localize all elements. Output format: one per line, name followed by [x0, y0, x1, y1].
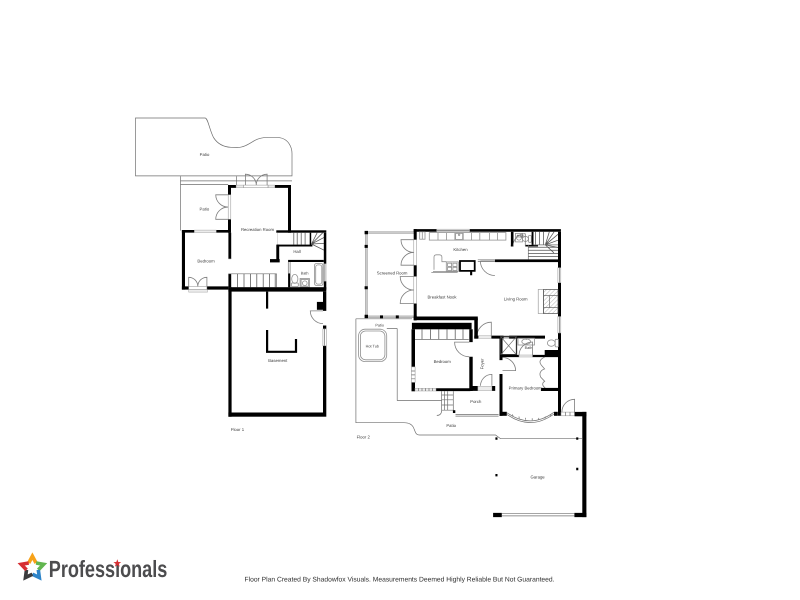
svg-text:Screened Room: Screened Room: [377, 271, 408, 276]
svg-text:Patio: Patio: [200, 152, 210, 157]
svg-text:Bedroom: Bedroom: [434, 359, 452, 364]
svg-text:Patio: Patio: [446, 423, 456, 428]
svg-text:Recreation Room: Recreation Room: [241, 227, 275, 232]
svg-text:Professionals: Professionals: [49, 556, 168, 582]
svg-text:Bath: Bath: [301, 272, 309, 276]
svg-text:Floor Plan Created By Shadowfo: Floor Plan Created By Shadowfox Visuals.…: [245, 577, 555, 584]
svg-text:Floor 1: Floor 1: [231, 427, 245, 432]
svg-text:Foyer: Foyer: [479, 358, 484, 369]
svg-text:Patio: Patio: [375, 323, 384, 327]
svg-text:Living Room: Living Room: [504, 296, 528, 301]
svg-text:Garage: Garage: [531, 474, 546, 479]
svg-text:Hot Tub: Hot Tub: [366, 345, 379, 349]
svg-text:Primary Bedroom: Primary Bedroom: [509, 385, 543, 390]
svg-text:Basement: Basement: [268, 358, 288, 363]
svg-text:Kitchen: Kitchen: [453, 247, 468, 252]
svg-text:Patio: Patio: [200, 206, 210, 211]
svg-text:Porch: Porch: [470, 399, 482, 404]
svg-text:Floor 2: Floor 2: [357, 435, 371, 440]
svg-text:Breakfast Nook: Breakfast Nook: [427, 295, 457, 300]
svg-text:Bath: Bath: [525, 346, 533, 350]
svg-text:Hall: Hall: [293, 249, 300, 254]
svg-text:Bedroom: Bedroom: [197, 258, 215, 263]
